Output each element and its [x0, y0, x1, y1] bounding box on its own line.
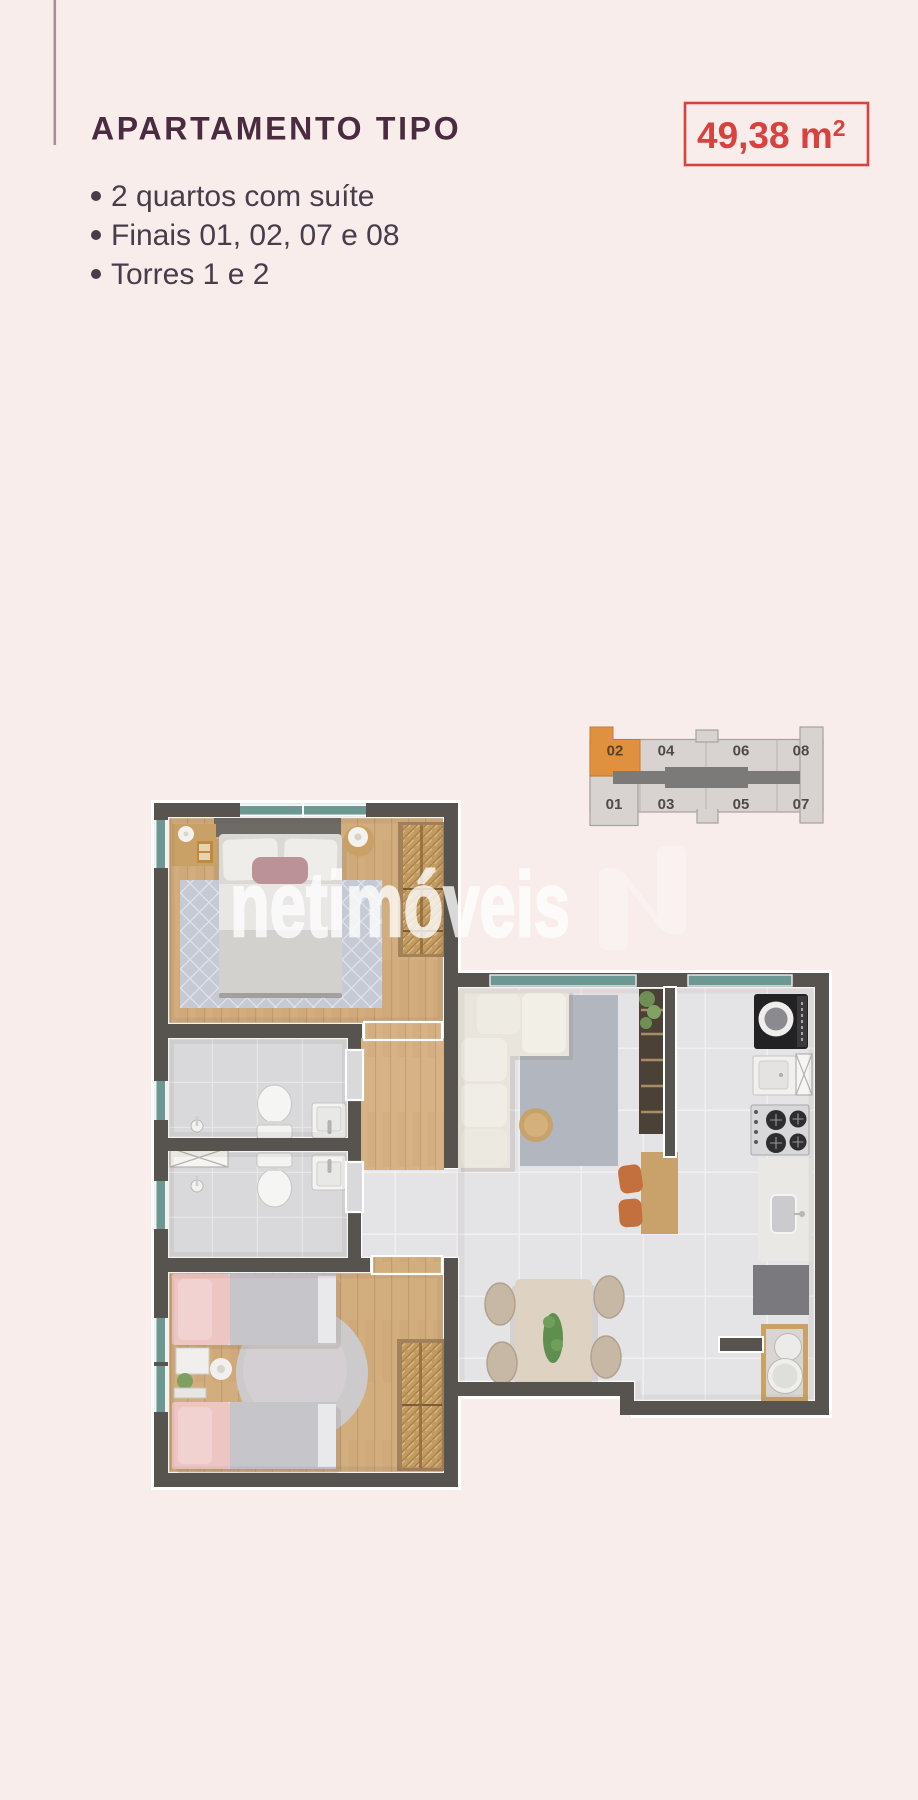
- svg-text:Torres 1 e 2: Torres 1 e 2: [111, 258, 269, 291]
- svg-text:08: 08: [793, 743, 810, 760]
- svg-text:netimóveis: netimóveis: [230, 854, 570, 956]
- svg-text:2 quartos com suíte: 2 quartos com suíte: [111, 180, 374, 213]
- svg-text:49,38 m2: 49,38 m2: [697, 115, 846, 156]
- svg-text:APARTAMENTO TIPO: APARTAMENTO TIPO: [91, 111, 461, 147]
- svg-text:01: 01: [606, 796, 623, 813]
- svg-text:04: 04: [658, 743, 675, 760]
- svg-text:07: 07: [793, 796, 810, 813]
- svg-text:02: 02: [607, 743, 624, 760]
- svg-text:Finais 01, 02, 07 e 08: Finais 01, 02, 07 e 08: [111, 219, 400, 252]
- svg-text:05: 05: [733, 796, 750, 813]
- svg-text:03: 03: [658, 796, 675, 813]
- svg-text:06: 06: [733, 743, 750, 760]
